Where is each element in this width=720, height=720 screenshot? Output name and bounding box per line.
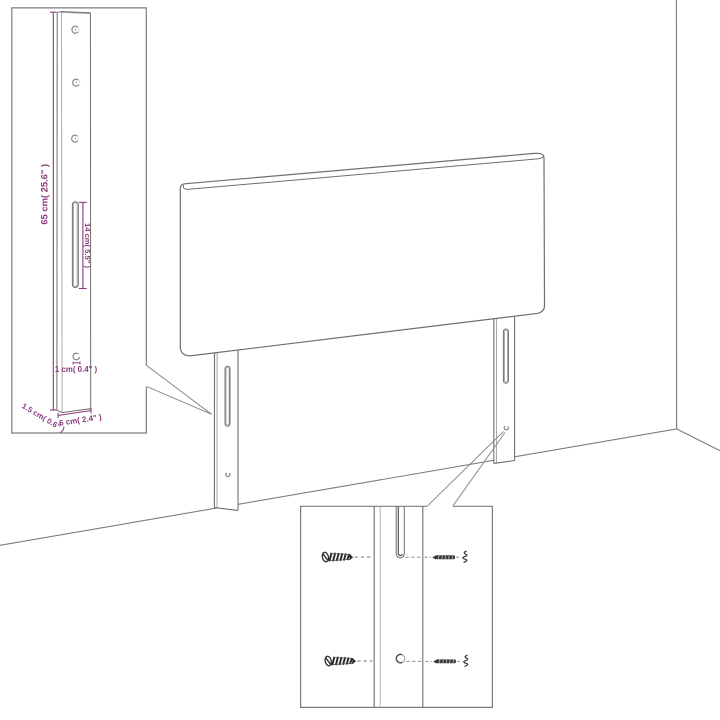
- svg-text:14 cm( 5.5" ): 14 cm( 5.5" ): [83, 223, 92, 268]
- svg-text:65 cm( 25.6" ): 65 cm( 25.6" ): [38, 164, 49, 225]
- svg-text:1 cm( 0.4" ): 1 cm( 0.4" ): [55, 365, 98, 374]
